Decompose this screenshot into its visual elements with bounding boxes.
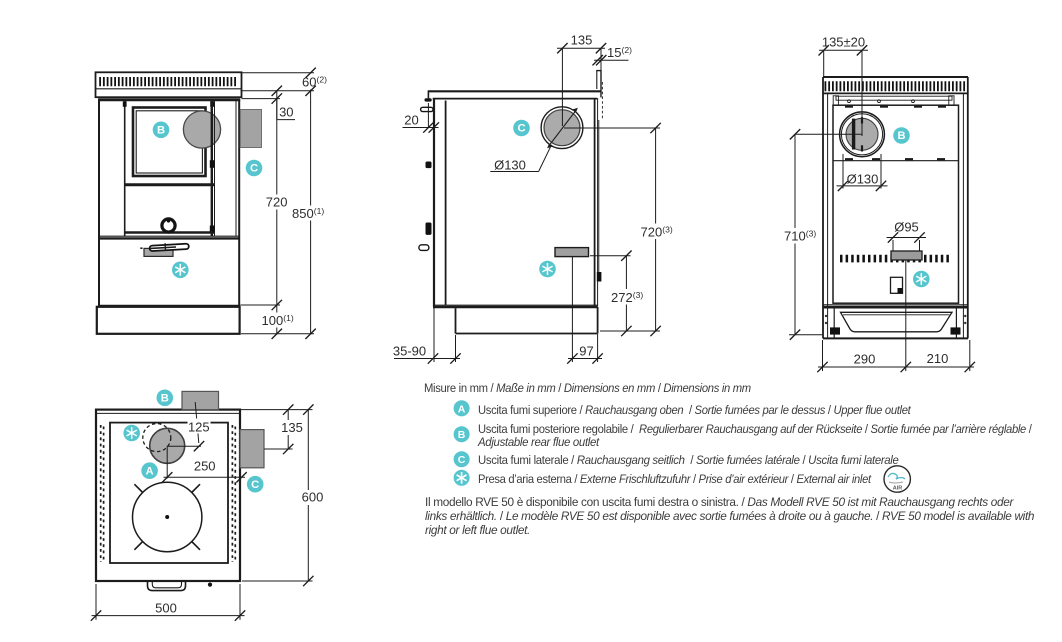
svg-text:Ø95: Ø95 [894, 219, 919, 234]
svg-text:250: 250 [194, 459, 216, 474]
svg-text:A: A [146, 465, 154, 477]
svg-text:C: C [250, 163, 258, 175]
svg-text:C: C [458, 454, 466, 466]
svg-text:B: B [157, 124, 165, 136]
svg-text:35-90: 35-90 [393, 344, 426, 359]
svg-text:Ø130: Ø130 [494, 157, 526, 172]
svg-text:500: 500 [155, 601, 177, 616]
svg-text:B: B [458, 429, 466, 441]
svg-text:20: 20 [404, 113, 418, 128]
svg-text:720: 720 [266, 195, 288, 210]
svg-text:B: B [161, 392, 169, 404]
svg-text:15(2): 15(2) [607, 45, 632, 60]
svg-text:135: 135 [281, 420, 303, 435]
svg-text:135±20: 135±20 [822, 34, 865, 49]
svg-text:290: 290 [854, 351, 876, 366]
svg-text:C: C [517, 123, 525, 135]
svg-text:135: 135 [571, 33, 593, 48]
svg-text:125: 125 [188, 419, 210, 434]
svg-text:97: 97 [579, 344, 593, 359]
svg-text:A: A [458, 403, 466, 415]
svg-text:AIR: AIR [893, 486, 903, 492]
svg-text:C: C [251, 479, 259, 491]
svg-text:30: 30 [279, 104, 293, 119]
svg-text:600: 600 [302, 490, 324, 505]
svg-text:Ø130: Ø130 [847, 171, 879, 186]
svg-text:210: 210 [927, 351, 949, 366]
svg-text:B: B [897, 130, 905, 142]
